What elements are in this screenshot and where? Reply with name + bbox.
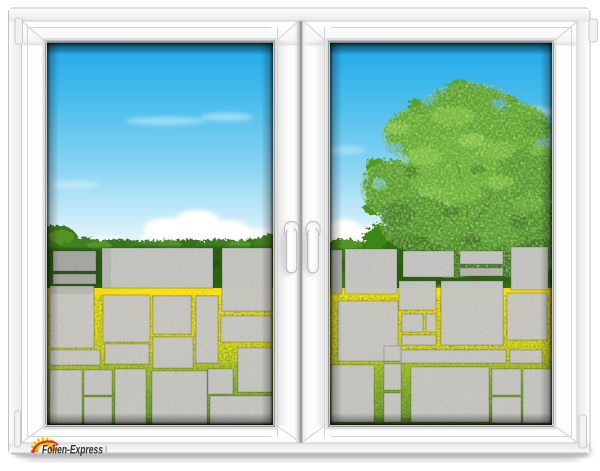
svg-text:Folien-Express: Folien-Express	[42, 444, 103, 456]
